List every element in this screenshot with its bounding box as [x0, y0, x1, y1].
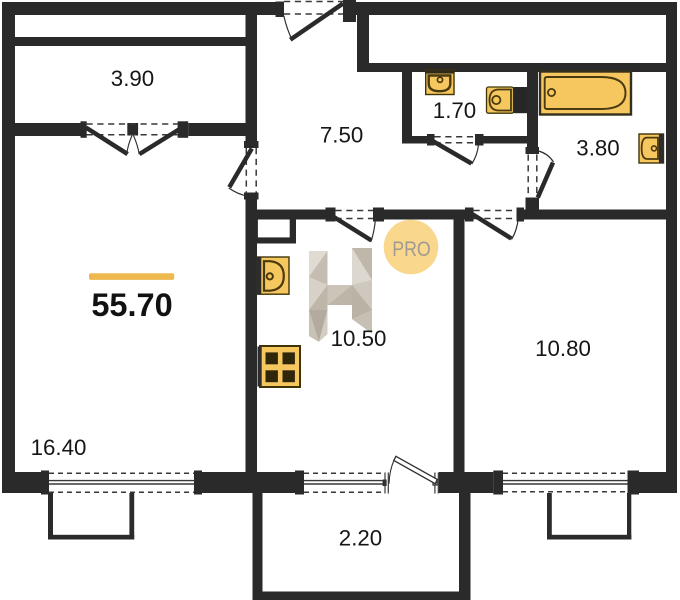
svg-text:3.90: 3.90 — [111, 66, 154, 91]
svg-text:10.50: 10.50 — [331, 326, 387, 351]
svg-text:7.50: 7.50 — [320, 123, 363, 148]
svg-text:10.80: 10.80 — [535, 336, 591, 361]
svg-text:PRO: PRO — [392, 237, 431, 261]
svg-text:16.40: 16.40 — [31, 435, 87, 460]
svg-text:2.20: 2.20 — [339, 526, 382, 551]
svg-text:3.80: 3.80 — [576, 135, 619, 160]
svg-text:55.70: 55.70 — [91, 287, 172, 323]
svg-text:1.70: 1.70 — [433, 98, 476, 123]
